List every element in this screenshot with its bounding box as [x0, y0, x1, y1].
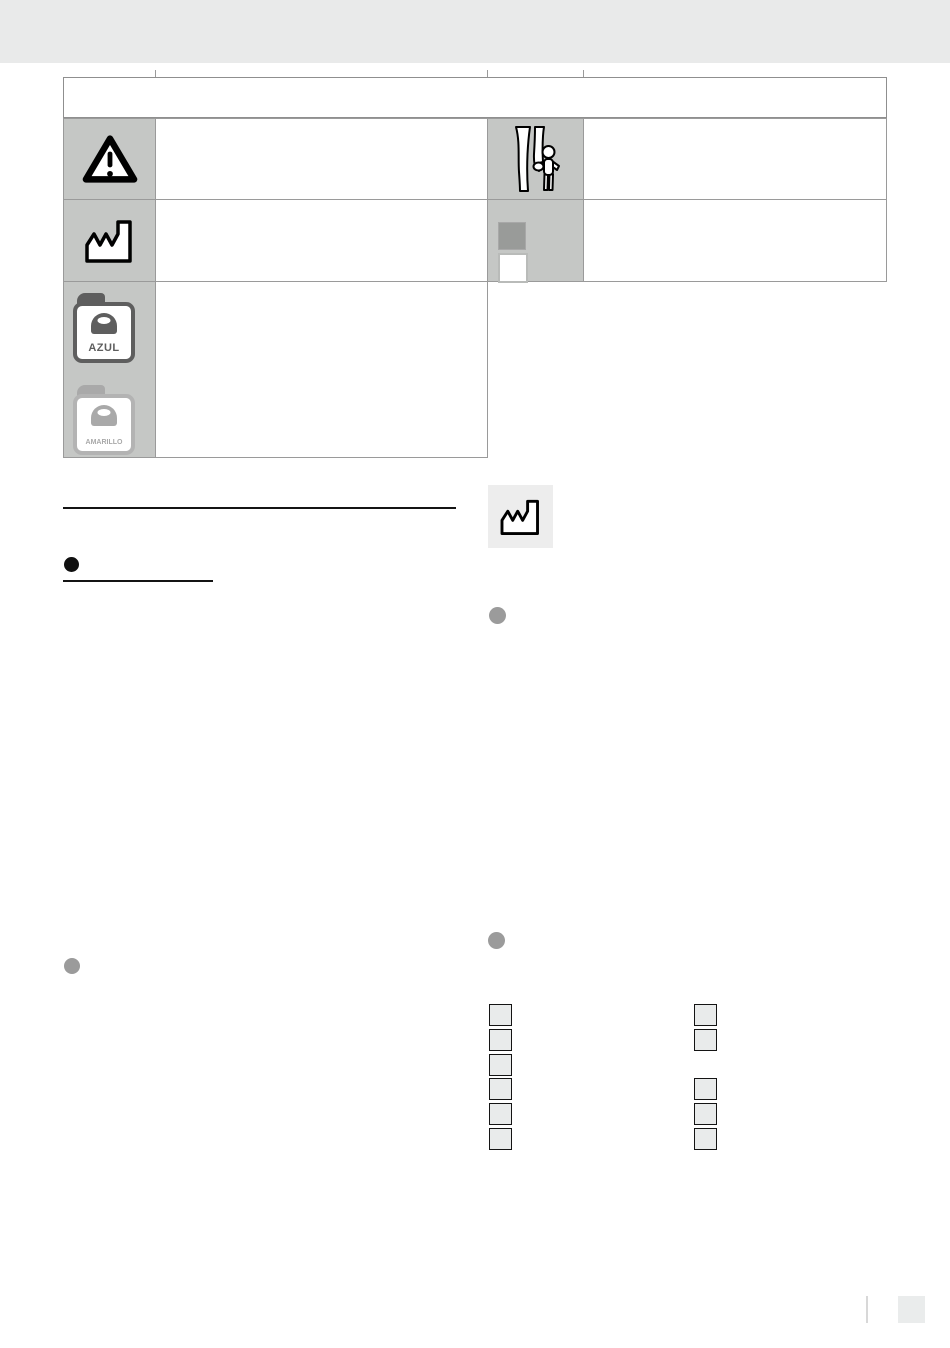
squares-description-cell: [583, 199, 887, 282]
warning-symbol-cell: [63, 118, 156, 200]
page-header-band: [0, 0, 950, 63]
gray-bullet-icon: [489, 607, 506, 624]
checkbox: [489, 1103, 512, 1125]
checkbox: [489, 1078, 512, 1100]
checkbox: [489, 1004, 512, 1026]
children-symbol-cell: [487, 118, 584, 200]
canister-handle: [91, 405, 117, 426]
canister-handle-hole: [98, 317, 111, 324]
canister-label: AZUL: [77, 342, 131, 354]
checkbox: [489, 1054, 512, 1076]
manufacturer-description-cell: [155, 199, 488, 282]
white-square-icon: [498, 253, 528, 283]
blue-oil-canister-icon: AZUL: [71, 293, 131, 357]
footer-divider: [866, 1296, 868, 1323]
manufacturer-factory-icon: [83, 218, 137, 264]
black-bullet-icon: [64, 557, 79, 572]
squares-symbol-cell: [487, 199, 584, 282]
manufacturer-factory-icon: [499, 498, 543, 536]
canister-body: AMARILLO: [73, 394, 135, 455]
manufacturer-symbol-cell: [63, 199, 156, 282]
warning-triangle-icon: [82, 134, 138, 184]
symbols-table-title-row: [63, 77, 887, 118]
warning-description-cell: [155, 118, 488, 200]
gray-bullet-icon: [488, 932, 505, 949]
checkbox: [489, 1029, 512, 1051]
keep-away-from-children-icon: [511, 126, 561, 192]
page-number-box: [898, 1296, 925, 1323]
gray-square-icon: [498, 222, 526, 250]
gray-bullet-icon: [64, 958, 80, 974]
checkbox: [489, 1128, 512, 1150]
checkbox: [694, 1128, 717, 1150]
canister-handle-hole: [98, 409, 111, 416]
section-heading-rule: [63, 507, 456, 509]
canister-body: AZUL: [73, 302, 135, 363]
children-description-cell: [583, 118, 887, 200]
checkbox: [694, 1103, 717, 1125]
canisters-symbol-cell: AZUL AMARILLO: [63, 281, 156, 458]
checkbox: [694, 1078, 717, 1100]
subheading-rule: [63, 580, 213, 582]
canister-label: AMARILLO: [77, 439, 131, 446]
yellow-oil-canister-icon: AMARILLO: [71, 385, 131, 449]
manufacture-date-box: [488, 485, 553, 548]
canisters-description-cell: [155, 281, 488, 458]
checkbox: [694, 1004, 717, 1026]
checkbox: [694, 1029, 717, 1051]
canister-handle: [91, 313, 117, 334]
